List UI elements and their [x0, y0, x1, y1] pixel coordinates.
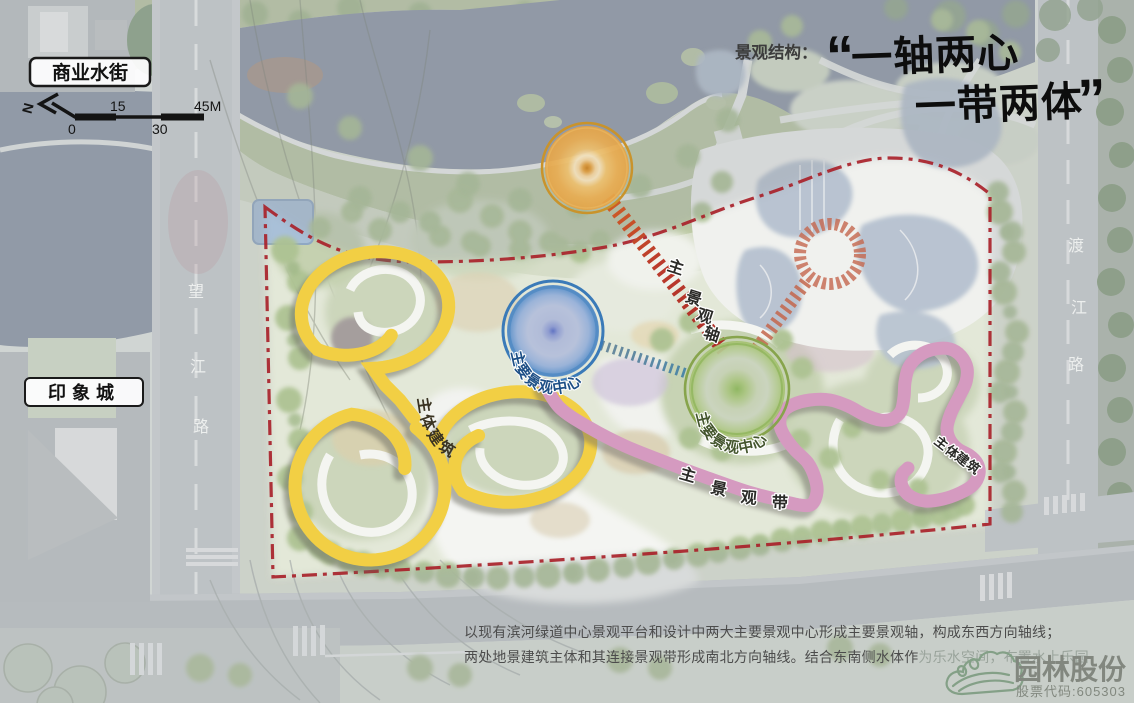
svg-text:一带两体: 一带两体 [914, 78, 1084, 130]
svg-text:以现有滨河绿道中心景观平台和设计中两大主要景观中心形成主要景: 以现有滨河绿道中心景观平台和设计中两大主要景观中心形成主要景观轴，构成东西方向轴… [464, 624, 1060, 641]
svg-text:江: 江 [190, 358, 206, 376]
svg-text:两处地景建筑主体和其连接景观带形成南北方向轴线。结合东南侧水: 两处地景建筑主体和其连接景观带形成南北方向轴线。结合东南侧水体作为乐水空间，布置… [464, 649, 1089, 665]
svg-text:路: 路 [1068, 356, 1084, 374]
svg-text:渡: 渡 [1068, 237, 1084, 255]
svg-text:一轴两心: 一轴两心 [850, 30, 1020, 82]
svg-text:园林股份: 园林股份 [1014, 654, 1126, 685]
svg-text:带: 带 [772, 493, 789, 513]
svg-text:景观结构：: 景观结构： [735, 42, 818, 62]
svg-text:商业水街: 商业水街 [52, 61, 128, 84]
svg-text:路: 路 [193, 418, 209, 436]
svg-text:30: 30 [152, 121, 168, 137]
svg-text:江: 江 [1071, 299, 1087, 317]
svg-text:印象城: 印象城 [48, 382, 120, 403]
svg-text:45M: 45M [194, 98, 221, 114]
svg-text:观: 观 [740, 488, 758, 508]
svg-text:望: 望 [188, 283, 204, 301]
svg-text:15: 15 [110, 98, 126, 114]
svg-text:0: 0 [68, 121, 76, 137]
svg-text:”: ” [1077, 67, 1107, 131]
svg-text:股票代码:605303: 股票代码:605303 [1016, 684, 1126, 699]
